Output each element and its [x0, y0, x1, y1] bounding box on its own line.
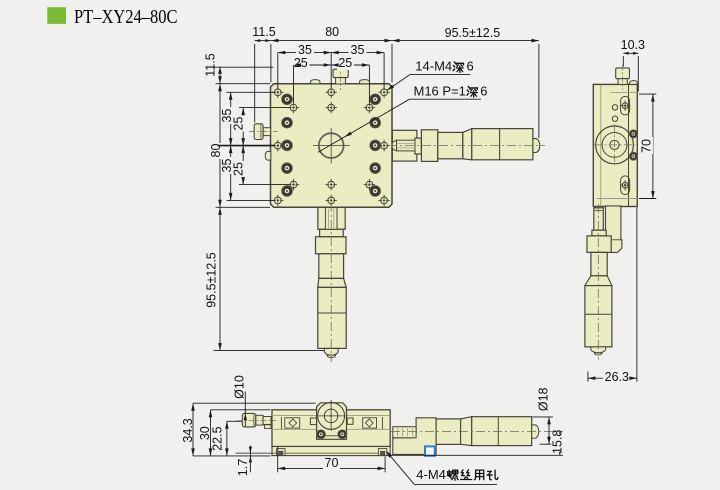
svg-text:PT–XY24–80C: PT–XY24–80C	[74, 6, 178, 28]
svg-text:95.5±12.5: 95.5±12.5	[445, 26, 501, 40]
svg-text:25: 25	[232, 162, 246, 176]
svg-text:25: 25	[294, 56, 308, 70]
svg-text:6: 6	[467, 59, 474, 74]
svg-text:6: 6	[480, 83, 487, 98]
svg-text:Ø18: Ø18	[537, 387, 551, 411]
svg-text:34.3: 34.3	[181, 418, 195, 442]
svg-text:10.3: 10.3	[621, 38, 645, 52]
svg-text:M16 P=1: M16 P=1	[414, 83, 466, 98]
svg-text:4-M4: 4-M4	[416, 467, 446, 482]
svg-text:26.3: 26.3	[605, 370, 629, 384]
svg-text:Ø10: Ø10	[233, 375, 247, 399]
svg-text:80: 80	[325, 25, 339, 39]
svg-text:70: 70	[639, 139, 653, 153]
svg-text:1.7: 1.7	[236, 459, 250, 476]
svg-text:35: 35	[351, 43, 365, 57]
svg-text:25: 25	[338, 56, 352, 70]
svg-text:25: 25	[232, 117, 246, 131]
svg-text:11.5: 11.5	[204, 53, 218, 76]
svg-text:14-M4: 14-M4	[415, 59, 452, 74]
svg-text:15.8: 15.8	[551, 430, 565, 454]
svg-text:22.5: 22.5	[210, 426, 224, 450]
svg-text:11.5: 11.5	[252, 25, 275, 39]
svg-text:70: 70	[325, 456, 339, 470]
svg-text:95.5±12.5: 95.5±12.5	[205, 252, 219, 308]
